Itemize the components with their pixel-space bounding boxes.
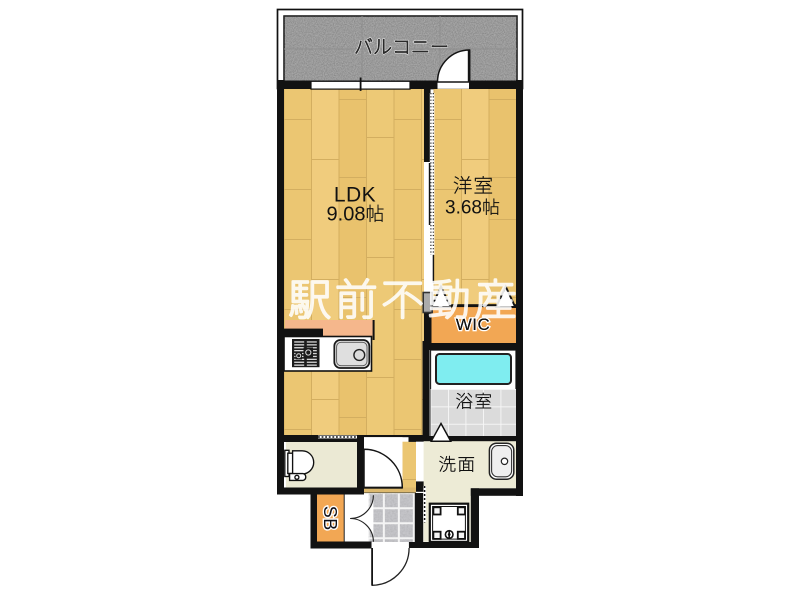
svg-text:SB: SB: [320, 506, 340, 531]
svg-text:9.08: 9.08: [327, 204, 366, 226]
svg-text:3.68: 3.68: [445, 198, 482, 219]
